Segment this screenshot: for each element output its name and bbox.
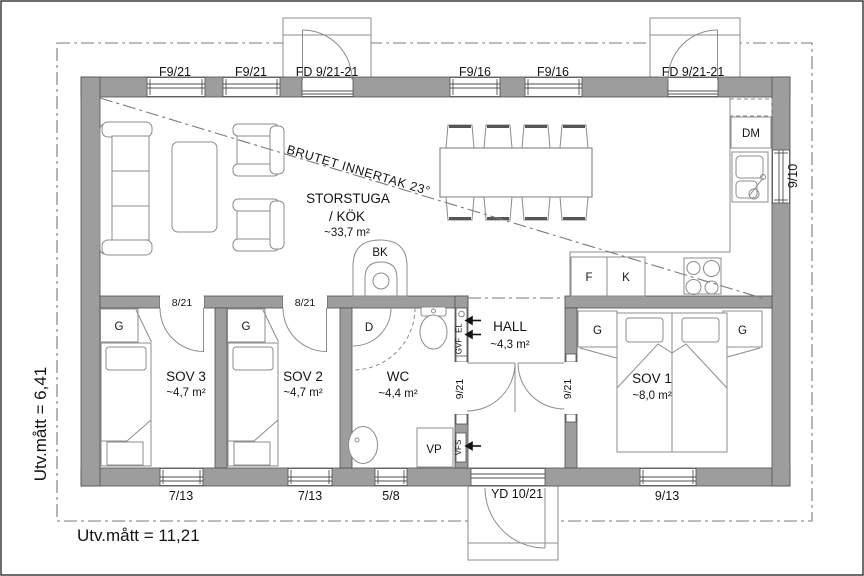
stove	[684, 258, 721, 295]
wardrobe-label: G	[242, 321, 251, 333]
window-label-top-1: F9/21	[159, 65, 191, 79]
room-label-sov1: SOV 1	[632, 371, 672, 386]
room-label-hall: HALL	[493, 319, 527, 334]
vent-panel-vfs: VFS	[454, 433, 466, 462]
window-label-top-2: F9/21	[235, 65, 267, 79]
room-area-sov2: ~4,7 m²	[283, 387, 322, 399]
room-area-wc: ~4,4 m²	[378, 388, 417, 400]
room-label-wc: WC	[387, 369, 410, 384]
kitchen-sink	[732, 152, 768, 202]
coffee-table	[172, 142, 217, 232]
window-f921-1	[147, 78, 205, 97]
sofa	[100, 122, 152, 255]
outer-width-label: Utv.mått = 11,21	[77, 526, 200, 545]
freezer-label: K	[622, 272, 630, 284]
window-58	[375, 469, 407, 486]
window-f921-2	[223, 78, 280, 97]
wall-sov3-sov2	[215, 308, 227, 468]
room-area-sov1: ~8,0 m²	[632, 390, 671, 402]
door-label-sov1: 9/21	[562, 379, 574, 400]
window-label-top-4: F9/16	[537, 65, 569, 79]
wall-sov1-north	[565, 296, 772, 308]
dining-table	[440, 148, 592, 197]
door-label-top-left: FD 9/21-21	[296, 65, 359, 79]
window-label-bottom-1: 7/13	[169, 489, 193, 503]
door-label-top-right: FD 9/21-21	[662, 65, 725, 79]
vent-panel-gvf-el: EL GVF	[455, 308, 468, 356]
pillow	[106, 347, 146, 370]
room-area-storstuga: ~33,7 m²	[324, 227, 370, 239]
toilet	[420, 307, 447, 349]
stove-chimney-label: BK	[372, 247, 388, 259]
pillow	[626, 318, 663, 342]
window-label-bottom-2: 7/13	[298, 489, 322, 503]
window-913	[640, 469, 696, 486]
window-label-bottom-3: 5/8	[382, 489, 399, 503]
wardrobe-label: G	[738, 325, 747, 337]
window-label-right: 9/10	[786, 164, 800, 188]
window-f916-2	[525, 78, 582, 97]
entry-door-label: YD 10/21	[491, 487, 543, 501]
room-label-storstuga: STORSTUGA	[306, 191, 390, 206]
door-label-wc: 9/21	[454, 379, 466, 400]
floor-plan: EL GVF VFS	[0, 0, 864, 576]
room-label-sov3: SOV 3	[166, 369, 206, 384]
room-area-sov3: ~4,7 m²	[166, 387, 205, 399]
vent-vfs-label: VFS	[454, 440, 463, 456]
door-label-sov3: 8/21	[172, 297, 193, 309]
wardrobe-label: G	[115, 321, 124, 333]
room-label-storstuga-2: / KÖK	[329, 209, 365, 224]
window-label-top-3: F9/16	[459, 65, 491, 79]
wall-wc-north	[327, 296, 468, 308]
room-area-hall: ~4,3 m²	[490, 339, 529, 351]
window-713-2	[288, 469, 332, 486]
wall-west	[81, 77, 100, 486]
room-label-sov2: SOV 2	[283, 369, 323, 384]
wall-east	[772, 77, 790, 486]
armchair-2	[233, 199, 284, 251]
heat-pump-label: VP	[426, 444, 442, 456]
vent-el-label: EL	[455, 323, 464, 333]
armchair-1	[233, 124, 284, 176]
fridge-label: F	[585, 272, 592, 284]
wall-sov3-sov2-north	[204, 296, 283, 308]
dishwasher-label: DM	[742, 128, 760, 140]
wall-sov3-north	[100, 296, 160, 308]
wash-basin	[349, 427, 378, 464]
vent-gvf-label: GVF	[455, 338, 464, 355]
door-label-sov2: 8/21	[295, 297, 316, 309]
window-713-1	[160, 469, 203, 486]
window-label-bottom-4: 9/13	[655, 489, 679, 503]
window-f916-1	[450, 78, 500, 97]
pillow	[233, 347, 273, 370]
shower-label: D	[365, 322, 373, 334]
wardrobe-label: G	[593, 325, 602, 337]
pillow	[682, 318, 719, 342]
outer-height-label: Utv.mått = 6,41	[31, 367, 50, 481]
